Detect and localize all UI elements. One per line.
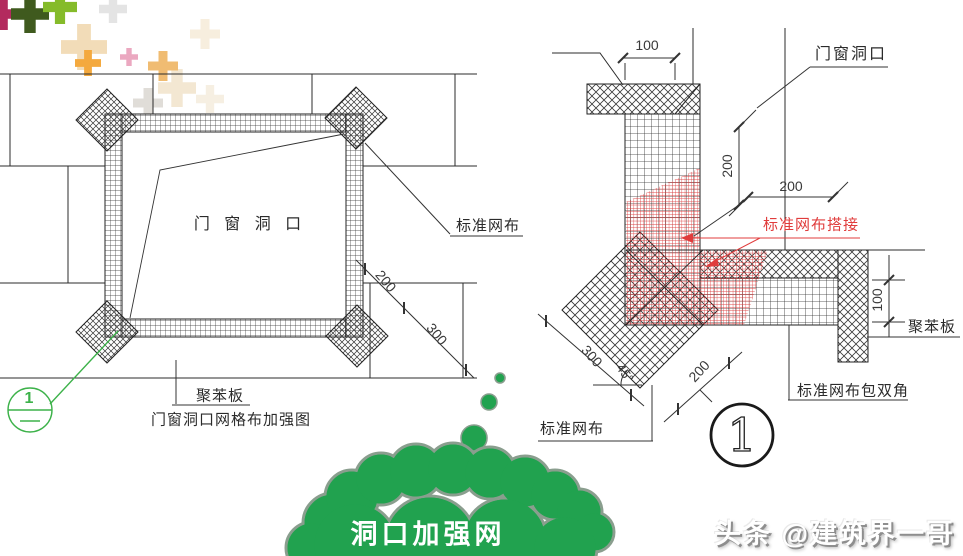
right-opening-label: 门窗洞口 [815, 40, 887, 64]
right-dim-100-top: 100 [635, 37, 658, 53]
right-dim-200-vertical: 200 [719, 154, 735, 177]
left-board-label: 聚苯板 [196, 385, 244, 406]
construction-detail-linework: 1 [0, 0, 963, 556]
left-detail-marker-number: 1 [25, 390, 34, 408]
left-diagram-title: 门窗洞口网格布加强图 [151, 409, 311, 430]
drawing-canvas: 1 [0, 0, 963, 556]
right-dim-100-right: 100 [869, 288, 885, 311]
detail-number-text: 1 [727, 408, 756, 462]
mesh-lap-label: 标准网布搭接 [763, 214, 859, 235]
callout-text: 洞口加强网 [351, 513, 506, 552]
watermark: 头条 @建筑界一哥 [714, 512, 955, 551]
right-dim-200-horizontal: 200 [779, 178, 802, 194]
right-board-label: 聚苯板 [908, 316, 956, 337]
mesh-wrap-corners-label: 标准网布包双角 [797, 380, 909, 401]
left-mesh-label: 标准网布 [456, 215, 520, 236]
thought-bubbles [461, 373, 505, 451]
right-detail-number-bubble: 1 [711, 404, 773, 466]
right-mesh-label: 标准网布 [540, 418, 604, 439]
left-opening-label: 门 窗 洞 口 [194, 210, 306, 234]
